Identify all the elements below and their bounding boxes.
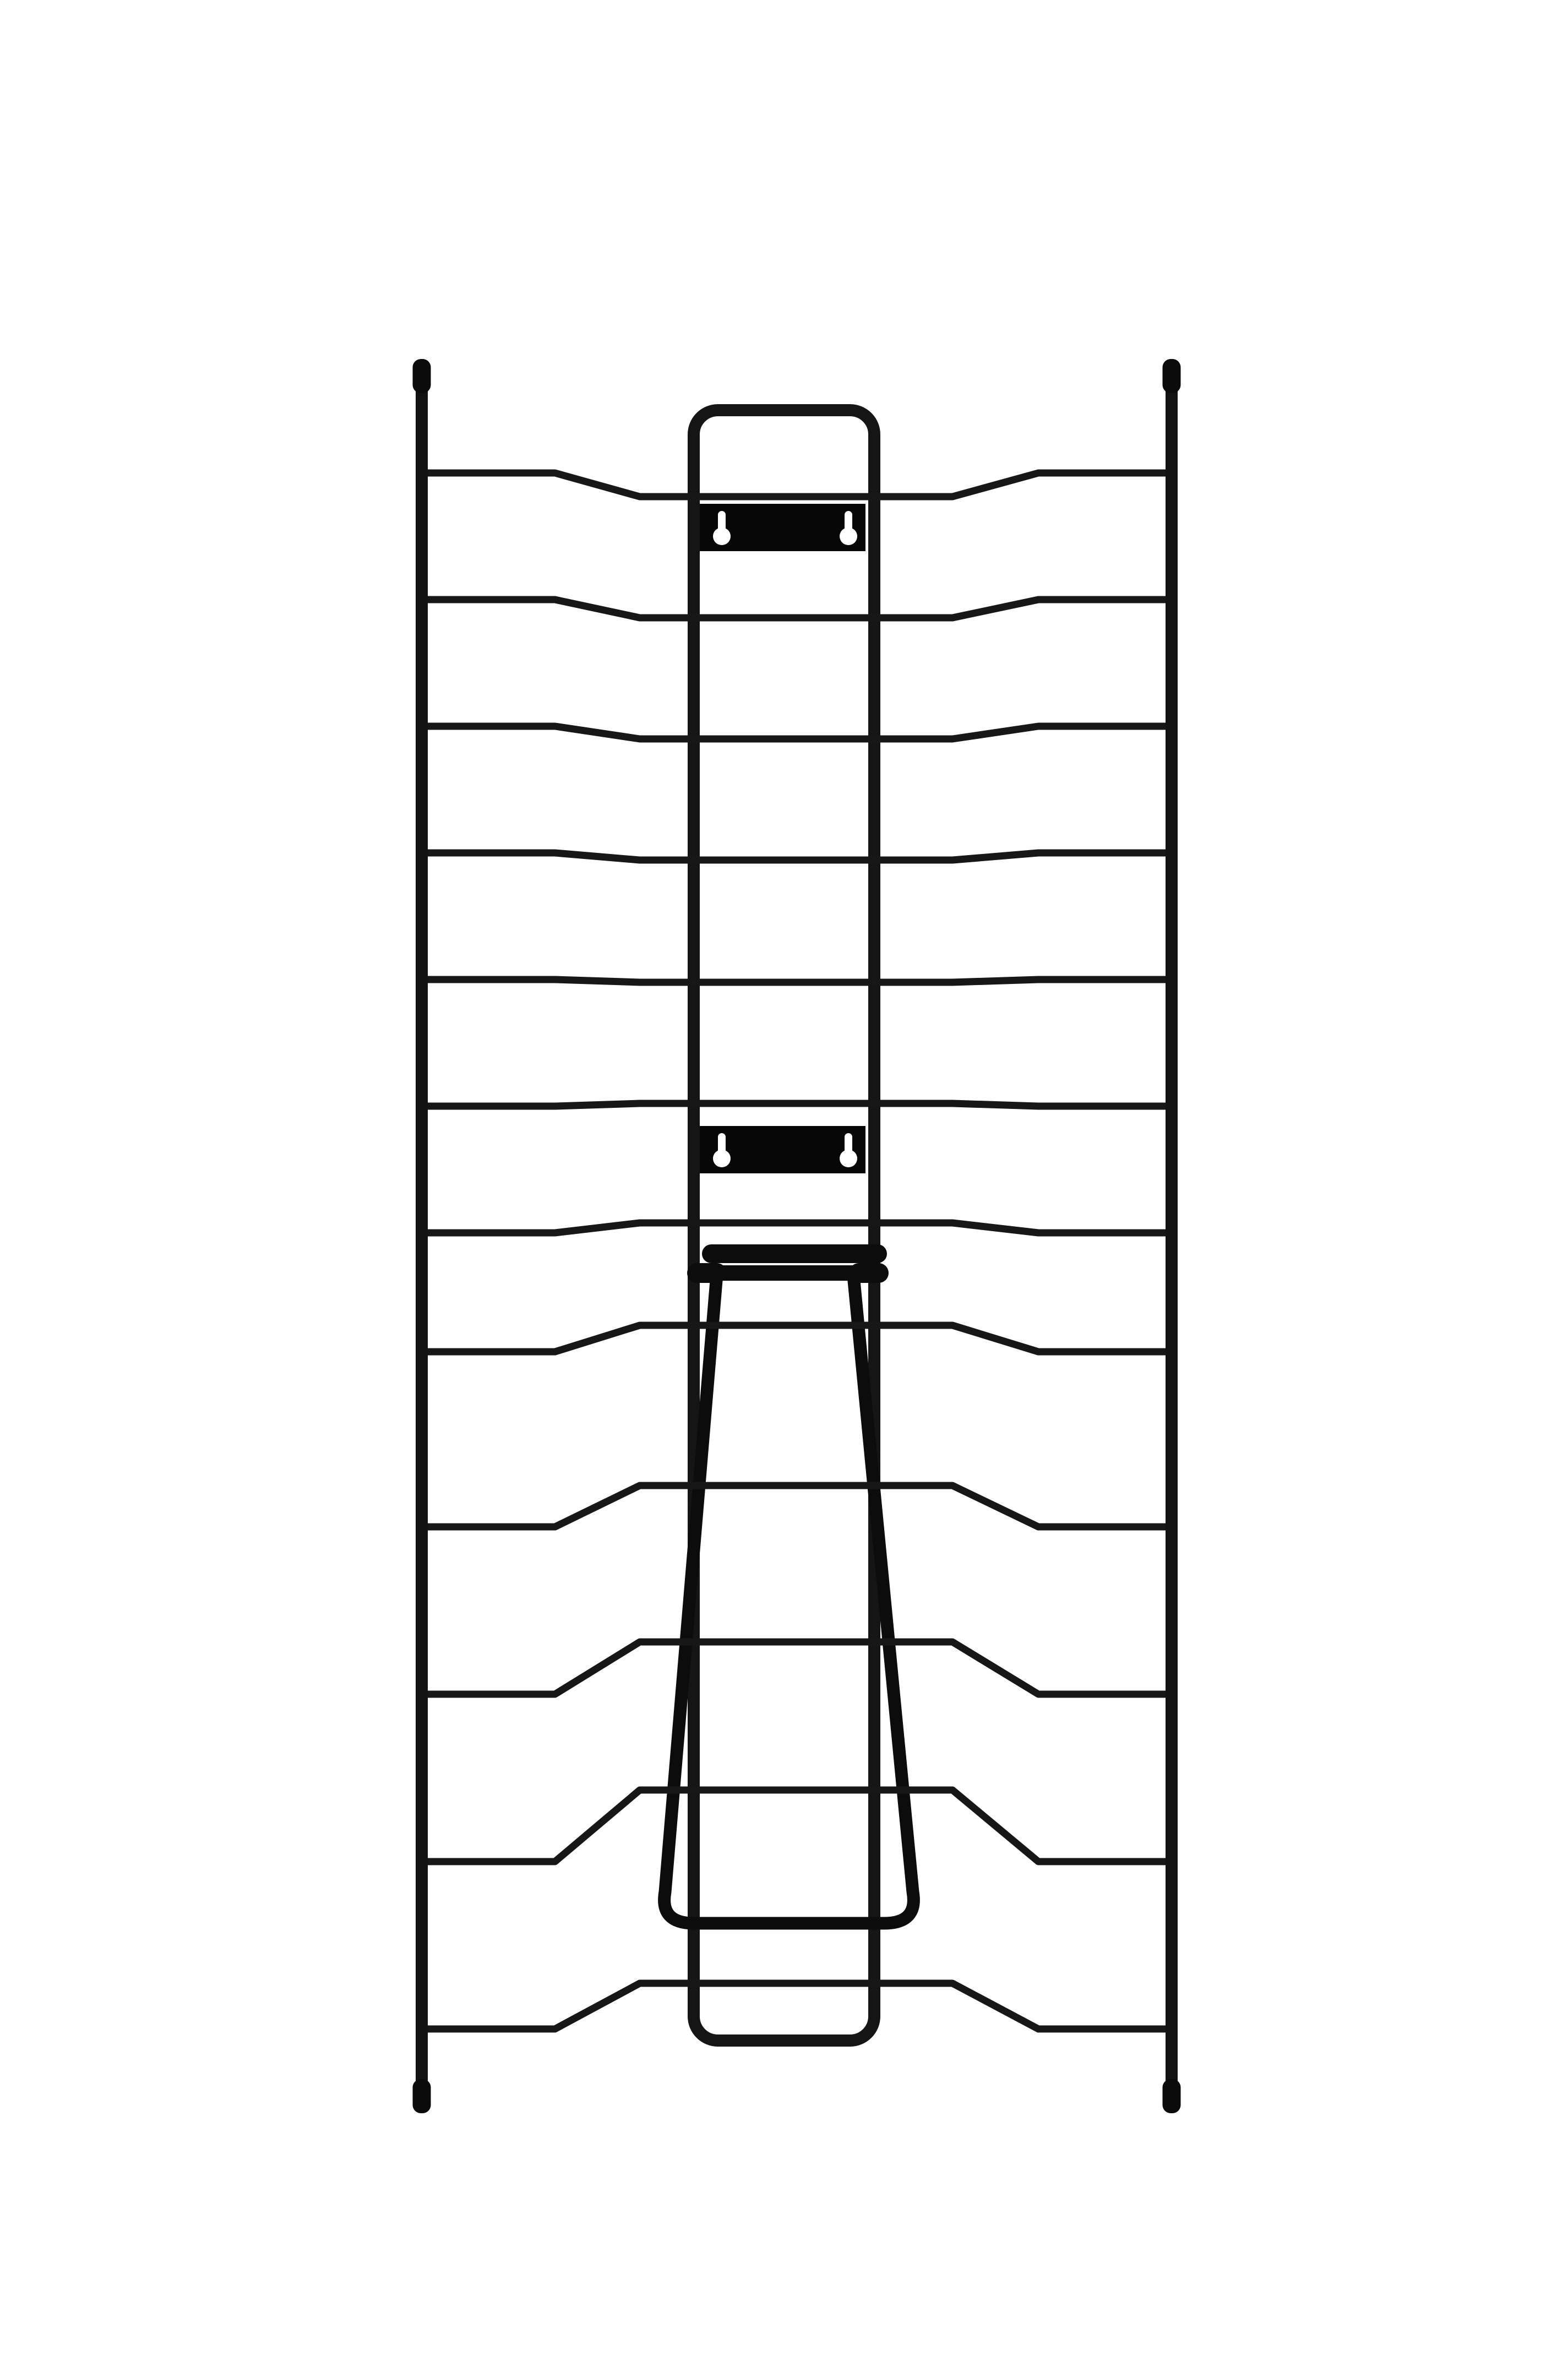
mount-plate-middle: [700, 1126, 865, 1173]
mount-plate-top: [700, 504, 865, 551]
rail-cap-bottom: [413, 2079, 431, 2113]
rail-cap-top: [1163, 359, 1181, 393]
photo-background: [0, 0, 1568, 2361]
wire-rack-photo: [0, 0, 1568, 2361]
rail-cap-bottom: [1163, 2079, 1181, 2113]
rail-cap-top: [413, 359, 431, 393]
product-photo: [0, 0, 1568, 2361]
